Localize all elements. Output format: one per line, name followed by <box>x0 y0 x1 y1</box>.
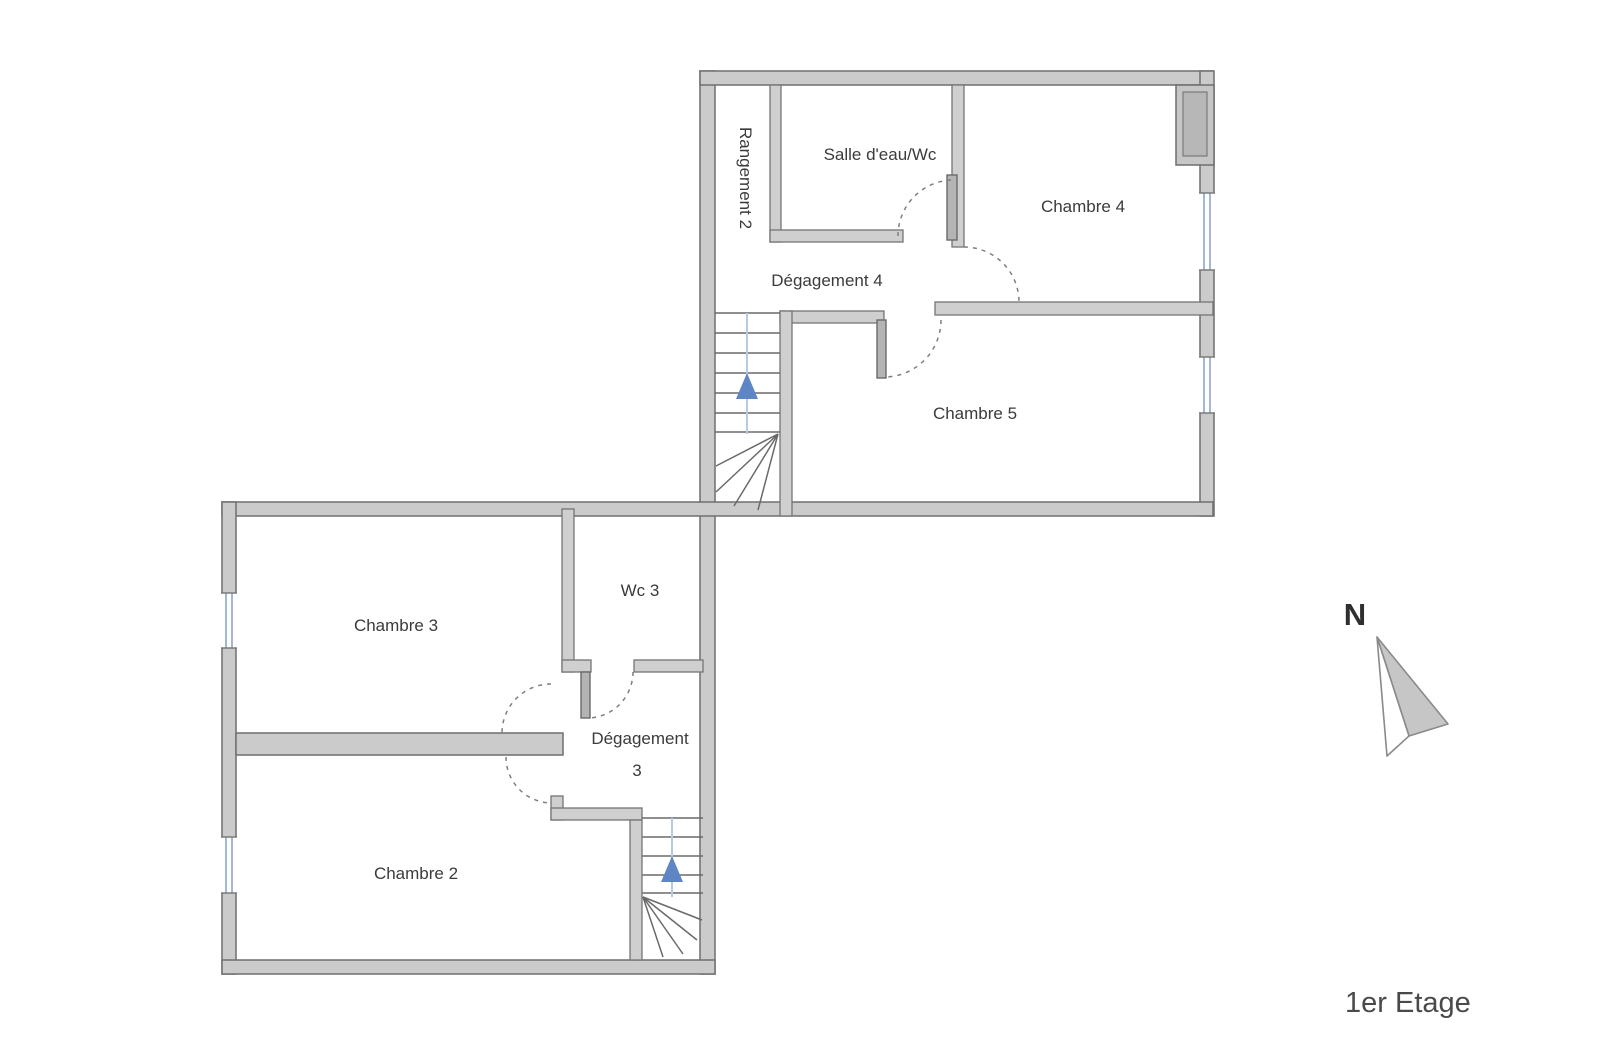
window-chambre3 <box>221 593 237 648</box>
label-chambre-5: Chambre 5 <box>933 404 1017 423</box>
label-degagement-4: Dégagement 4 <box>771 271 883 290</box>
wall-wc3-south-west <box>562 660 591 672</box>
window-chambre4 <box>1199 193 1215 270</box>
wall-salle-eau-south <box>770 230 903 242</box>
floor-plan-page: Rangement 2 Salle d'eau/Wc Chambre 4 Dég… <box>0 0 1600 1053</box>
label-salle-eau-wc: Salle d'eau/Wc <box>824 145 937 164</box>
label-degagement-3-line2: 3 <box>632 761 641 780</box>
label-chambre-4: Chambre 4 <box>1041 197 1125 216</box>
wall-chambre4-chambre5 <box>935 302 1213 315</box>
floor-plan-drawing: Rangement 2 Salle d'eau/Wc Chambre 4 Dég… <box>0 0 1600 1053</box>
wall-wc3-south-east <box>634 660 703 672</box>
label-chambre-3: Chambre 3 <box>354 616 438 635</box>
label-rangement-2: Rangement 2 <box>736 127 755 229</box>
floor-title: 1er Etage <box>1345 987 1471 1019</box>
door-leaf-wc3 <box>581 672 590 718</box>
chimney-block <box>1176 85 1214 165</box>
wall-stairwell-upper-east <box>780 311 792 516</box>
wall-lower-bottom <box>222 960 715 974</box>
wall-degagement4-chambre5 <box>780 311 884 323</box>
door-leaf-chambre5 <box>877 320 886 378</box>
door-leaf-salle-eau <box>947 175 957 240</box>
label-degagement-3-line1: Dégagement <box>591 729 689 748</box>
wall-stairwell-lower-west <box>630 820 642 960</box>
window-chambre5 <box>1199 357 1215 413</box>
wall-rangement-east <box>770 85 781 242</box>
wall-chambre3-chambre2 <box>236 733 563 755</box>
wall-lower-left <box>222 502 236 974</box>
wall-stair-entry <box>551 808 642 820</box>
wall-chambre3-wc3 <box>562 509 574 672</box>
wall-shared-vertical <box>700 71 715 974</box>
room-chambre-2 <box>236 755 630 960</box>
wall-mid-band <box>222 502 1213 516</box>
label-wc-3: Wc 3 <box>621 581 660 600</box>
chimney-flue <box>1183 92 1207 156</box>
label-chambre-2: Chambre 2 <box>374 864 458 883</box>
compass-north-letter: N <box>1344 597 1366 632</box>
north-compass: N <box>1344 597 1448 756</box>
room-chambre-4 <box>964 85 1200 302</box>
room-regions <box>236 85 1200 960</box>
wall-upper-top <box>700 71 1213 85</box>
window-chambre2 <box>221 837 237 893</box>
